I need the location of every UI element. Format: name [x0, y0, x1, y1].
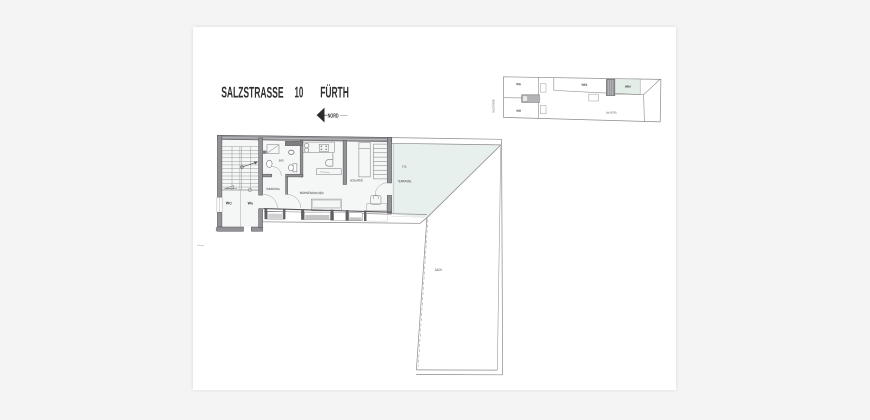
- svg-text:SALZSTRASSE: SALZSTRASSE: [492, 99, 496, 113]
- svg-text:WE4: WE4: [625, 85, 631, 89]
- svg-text:FÜRTH: FÜRTH: [320, 84, 349, 101]
- svg-text:DACH: DACH: [435, 268, 442, 272]
- svg-text:WG: WG: [516, 109, 521, 113]
- svg-text:WE3: WE3: [581, 83, 587, 87]
- svg-text:WG: WG: [516, 82, 521, 86]
- svg-text:SALZSTRASSE: SALZSTRASSE: [221, 84, 283, 101]
- svg-text:DACHTERR.: DACHTERR.: [606, 111, 617, 115]
- svg-text:NORD: NORD: [328, 114, 339, 120]
- svg-text:SCHLAFEN: SCHLAFEN: [350, 179, 363, 183]
- svg-text:WINDFANG: WINDFANG: [266, 187, 280, 191]
- svg-text:F.B.: F.B.: [402, 165, 407, 169]
- svg-text:BAD: BAD: [279, 158, 285, 162]
- svg-text:TERRASSE: TERRASSE: [397, 179, 411, 183]
- svg-text:WC: WC: [226, 201, 232, 205]
- svg-text:WOHNEN/KOCHEN: WOHNEN/KOCHEN: [300, 191, 324, 195]
- svg-text:10: 10: [294, 84, 303, 101]
